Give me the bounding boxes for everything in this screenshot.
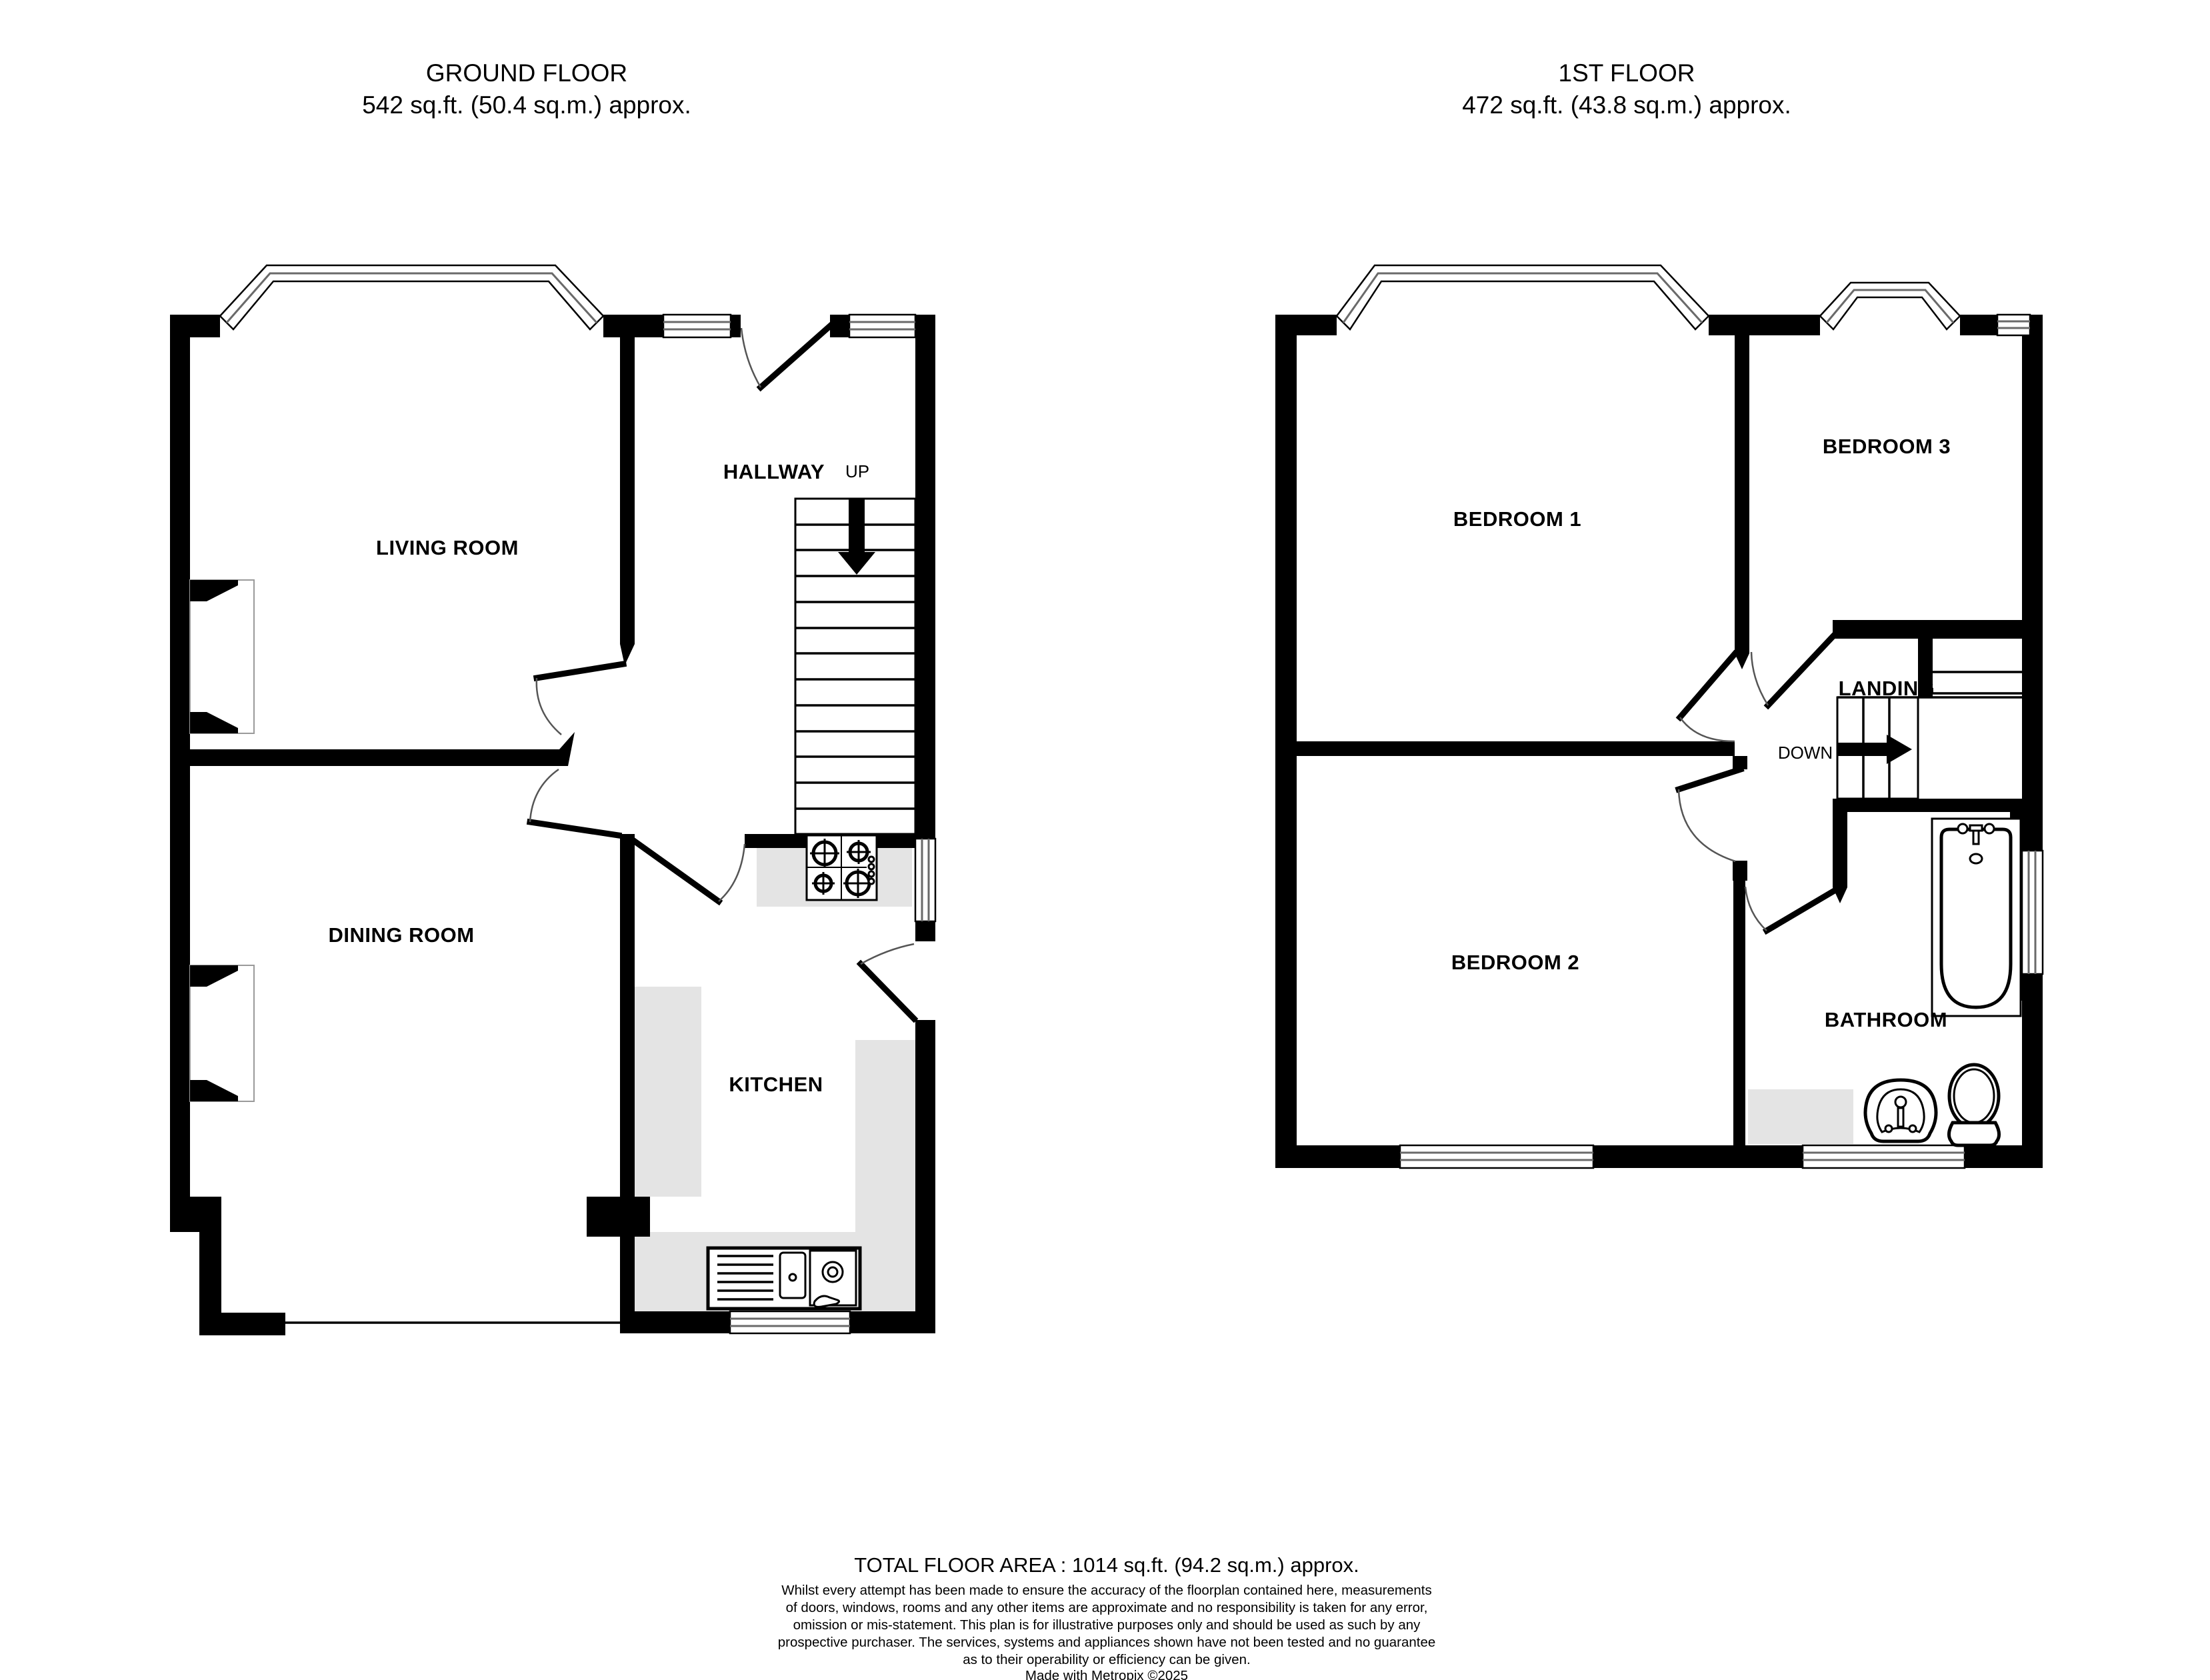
bathroom-door	[1745, 887, 1840, 931]
ground-stairs	[795, 499, 915, 834]
bay-window-bedroom3	[1820, 283, 1960, 329]
bedroom2-door	[1679, 769, 1741, 861]
wall-landing-bathroom	[1833, 799, 2043, 812]
down-arrow-icon	[1837, 735, 1912, 764]
credit-line: Made with Metropix ©2025	[1025, 1668, 1188, 1680]
footer: TOTAL FLOOR AREA : 1014 sq.ft. (94.2 sq.…	[778, 1553, 1436, 1680]
hob-icon	[807, 835, 877, 900]
bay-window-ground	[220, 265, 603, 329]
wall	[915, 921, 935, 941]
bedroom3-door	[1751, 637, 1833, 705]
window-kitchen-bottom	[730, 1311, 850, 1333]
total-floor-area: TOTAL FLOOR AREA : 1014 sq.ft. (94.2 sq.…	[854, 1553, 1359, 1577]
label-bedroom2: BEDROOM 2	[1451, 951, 1579, 974]
ground-floor-plan: GROUND FLOOR 542 sq.ft. (50.4 sq.m.) app…	[170, 59, 935, 1335]
wall-bottom	[850, 1311, 935, 1333]
label-bedroom3: BEDROOM 3	[1823, 435, 1951, 458]
ground-floor-area: 542 sq.ft. (50.4 sq.m.) approx.	[362, 91, 691, 119]
wall-living-hallway	[620, 337, 635, 644]
wall-living-dining	[190, 749, 559, 766]
up-arrow-icon	[838, 499, 875, 575]
toilet-icon	[1949, 1065, 1999, 1145]
bathroom-mat	[1748, 1089, 1853, 1144]
back-door	[861, 944, 914, 1019]
label-hallway: HALLWAY	[723, 460, 825, 483]
label-down: DOWN	[1778, 743, 1833, 763]
window-front-right	[849, 315, 915, 337]
living-room-chimney	[190, 580, 254, 733]
wall	[170, 315, 190, 1197]
wall-bay-stub-left	[1275, 315, 1337, 335]
dining-room-chimney	[190, 965, 254, 1101]
wall-bed1-right	[1735, 335, 1749, 653]
wall-bottom	[1965, 1145, 2043, 1168]
label-living-room: LIVING ROOM	[376, 536, 519, 559]
wall-bottom	[1275, 1145, 1400, 1168]
floorplan-page: GROUND FLOOR 542 sq.ft. (50.4 sq.m.) app…	[0, 0, 2210, 1680]
wall-left	[1275, 315, 1297, 1145]
wall-bathroom-left	[1733, 861, 1745, 1145]
counter-right	[855, 1040, 915, 1233]
window-front-left	[663, 315, 731, 337]
first-floor-plan: 1ST FLOOR 472 sq.ft. (43.8 sq.m.) approx…	[1275, 59, 2043, 1168]
wall-right	[2022, 315, 2043, 851]
wall-bed1-bed2	[1297, 741, 1735, 756]
kitchen-door	[635, 841, 745, 901]
ground-doors	[530, 326, 914, 1019]
label-kitchen: KITCHEN	[729, 1073, 823, 1096]
window-kitchen-side	[915, 839, 935, 921]
floorplan-image: GROUND FLOOR 542 sq.ft. (50.4 sq.m.) app…	[0, 0, 2210, 1680]
first-floor-title: 1ST FLOOR	[1559, 59, 1695, 87]
dining-room-door	[530, 769, 619, 835]
wall-bottom	[620, 1311, 730, 1333]
bay-window-glазing	[220, 265, 603, 329]
window-bathroom-bottom	[1803, 1145, 1965, 1168]
bedroom1-door	[1680, 654, 1735, 741]
wall-bottom	[1593, 1145, 1803, 1168]
bay-window-bedroom1	[1337, 265, 1709, 329]
wall	[199, 1313, 285, 1335]
disclaimer-line: of doors, windows, rooms and any other i…	[786, 1600, 1428, 1615]
disclaimer-line: prospective purchaser. The services, sys…	[778, 1635, 1436, 1650]
counter-left	[635, 987, 701, 1197]
label-bedroom1: BEDROOM 1	[1453, 507, 1581, 531]
wall-right	[2022, 974, 2043, 1168]
label-bathroom: BATHROOM	[1825, 1008, 1947, 1031]
disclaimer-line: omission or mis-statement. This plan is …	[793, 1617, 1421, 1633]
wall-bathroom-door-post	[1833, 812, 1847, 887]
window-bathroom-side	[2022, 851, 2043, 974]
first-doors	[1679, 637, 1840, 931]
wall-pier	[587, 1197, 650, 1237]
wall	[1960, 315, 1997, 335]
wall	[915, 1020, 935, 1333]
basin-icon	[1865, 1080, 1936, 1141]
wall-between-bays	[1709, 315, 1820, 335]
bath-icon	[1932, 819, 2021, 1016]
wall-right	[915, 315, 935, 839]
wall-wedge	[559, 732, 575, 766]
wall-dining-kitchen	[620, 834, 635, 1311]
window-top-right	[1997, 315, 2030, 335]
label-up: UP	[845, 461, 869, 481]
wall-bed3-bottom	[1833, 620, 2043, 639]
disclaimer-line: Whilst every attempt has been made to en…	[781, 1583, 1431, 1598]
wall	[170, 1197, 221, 1232]
wall	[731, 315, 741, 337]
living-room-door	[537, 664, 623, 735]
ground-floor-title: GROUND FLOOR	[426, 59, 627, 87]
first-floor-area: 472 sq.ft. (43.8 sq.m.) approx.	[1462, 91, 1791, 119]
sink-icon	[708, 1248, 860, 1309]
window-bedroom2-bottom	[1400, 1145, 1593, 1168]
wall-bay-stub-left	[170, 315, 220, 337]
wall-bay-stub-right	[603, 315, 663, 337]
label-landing: LANDING	[1839, 677, 1935, 700]
label-dining-room: DINING ROOM	[328, 923, 474, 947]
front-door	[741, 326, 830, 387]
disclaimer-line: as to their operability or efficiency ca…	[963, 1652, 1251, 1667]
